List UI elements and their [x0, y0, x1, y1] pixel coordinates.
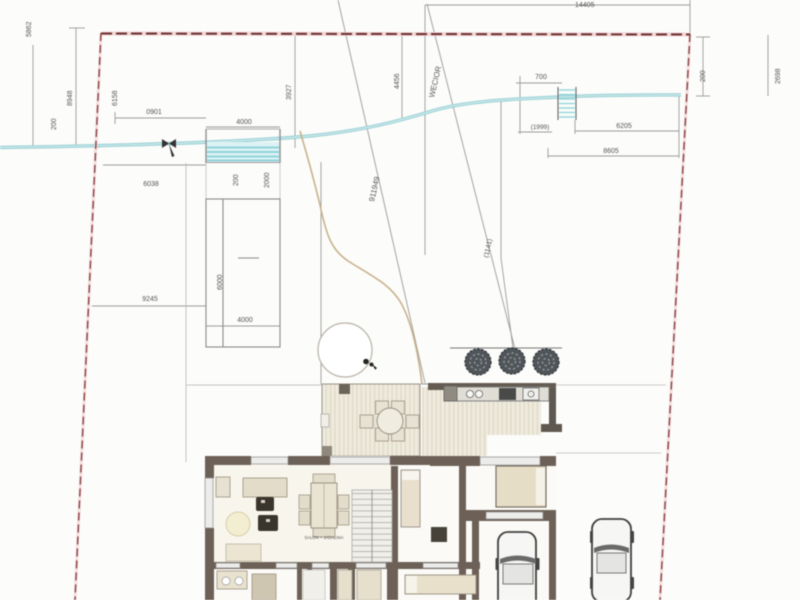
- svg-text:6000: 6000: [217, 274, 224, 290]
- svg-text:8948: 8948: [67, 90, 74, 106]
- svg-text:SALON + JADALNIA: SALON + JADALNIA: [305, 535, 344, 540]
- svg-text:2698: 2698: [775, 68, 782, 84]
- svg-text:700: 700: [535, 74, 547, 81]
- svg-text:(1999): (1999): [531, 124, 549, 131]
- svg-text:200: 200: [51, 118, 58, 130]
- svg-text:6205: 6205: [616, 123, 632, 130]
- svg-text:200: 200: [233, 174, 240, 186]
- svg-text:4456: 4456: [394, 73, 401, 89]
- svg-text:5862: 5862: [26, 21, 33, 37]
- svg-text:9245: 9245: [142, 296, 158, 303]
- svg-text:6038: 6038: [143, 181, 159, 188]
- svg-text:4000: 4000: [236, 119, 252, 126]
- svg-text:14405: 14405: [575, 2, 595, 9]
- svg-text:200: 200: [700, 70, 707, 82]
- svg-text:6158: 6158: [112, 90, 119, 106]
- svg-text:4000: 4000: [237, 317, 253, 324]
- svg-text:2000: 2000: [264, 172, 271, 188]
- svg-text:0901: 0901: [146, 109, 162, 116]
- svg-text:3927: 3927: [286, 84, 293, 100]
- svg-text:8605: 8605: [603, 148, 619, 155]
